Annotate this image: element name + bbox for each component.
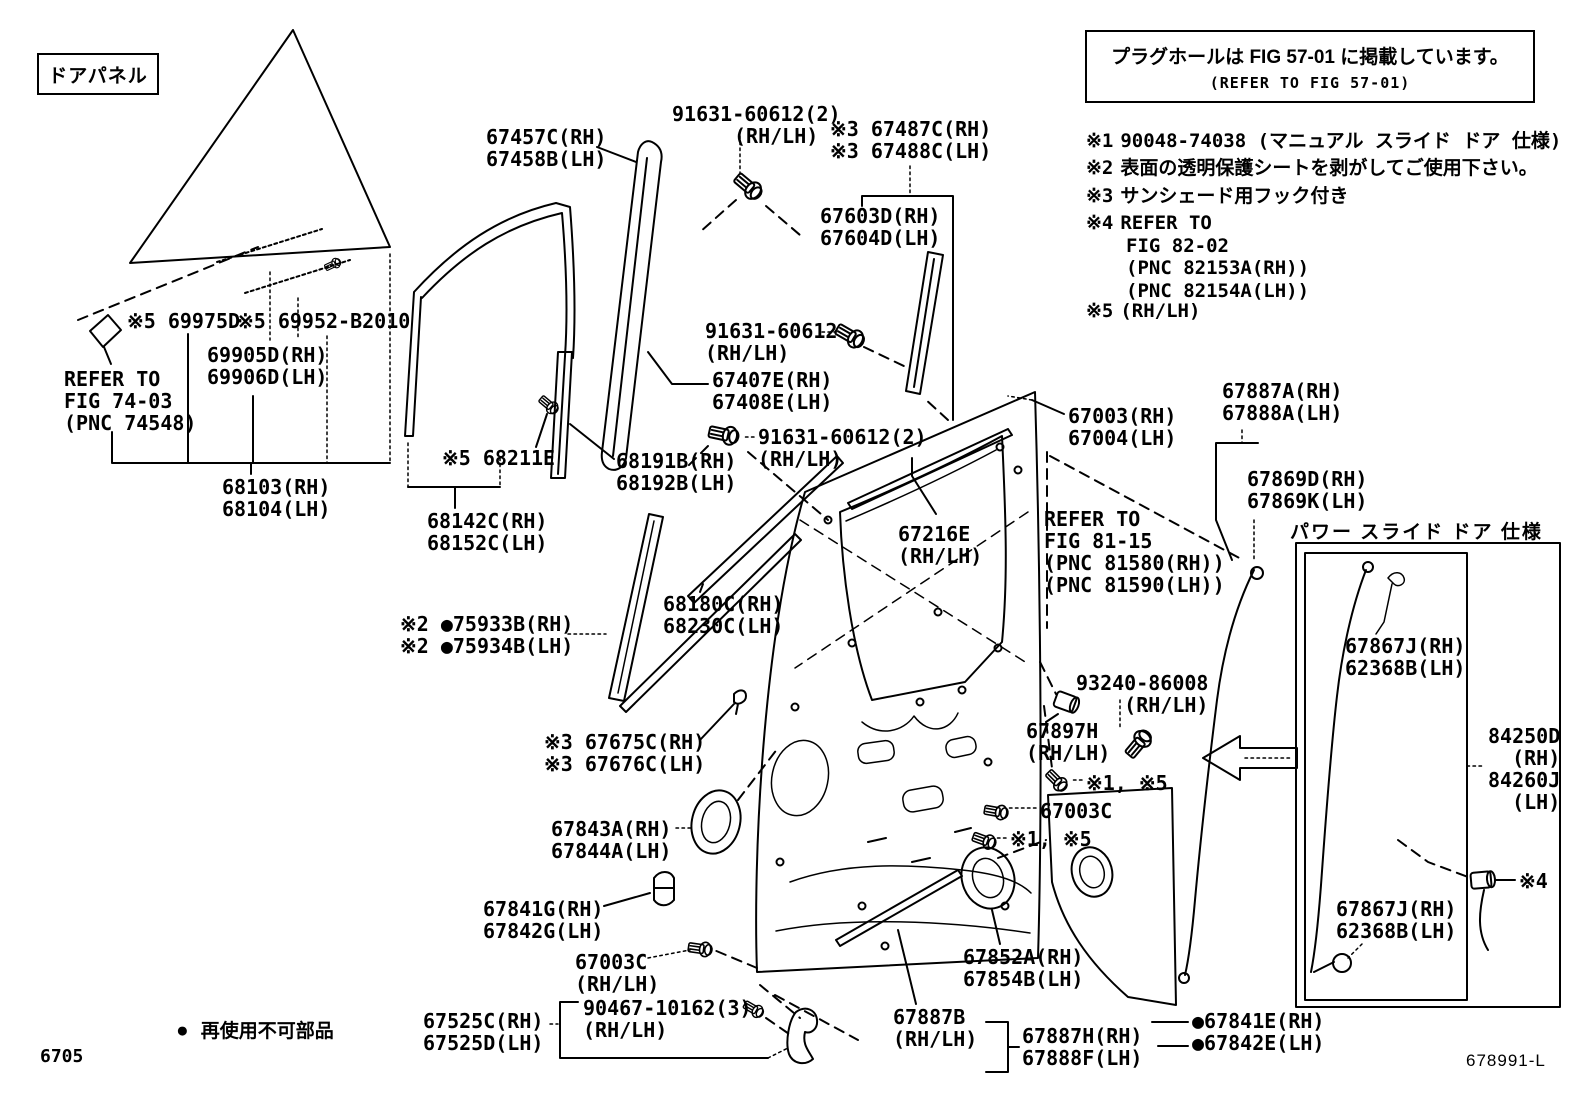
- part-label-line: FIG 81-15: [1044, 530, 1225, 552]
- part-label-line: 67887B: [893, 1006, 977, 1028]
- part-label-line: ※3 67675C(RH): [544, 731, 705, 753]
- part-label-line: ※1, ※5: [1086, 772, 1168, 794]
- parts-diagram-page: ドアパネル プラグホールは FIG 57-01 に掲載しています。 (REFER…: [0, 0, 1592, 1099]
- part-label-line: 67603D(RH): [820, 205, 940, 227]
- plug-hole-note-jp: プラグホールは FIG 57-01 に掲載しています。: [1111, 42, 1509, 69]
- label-67487c: ※3 67487C(RH)※3 67488C(LH): [830, 118, 991, 162]
- plug-hole-note-en: (REFER TO FIG 57-01): [1210, 74, 1411, 92]
- weatherstrip-69906: [245, 260, 350, 293]
- footnote-marker: ※2: [1086, 157, 1113, 180]
- part-label-line: 67867J(RH): [1345, 635, 1465, 657]
- part-label-line: (RH/LH): [583, 1019, 752, 1041]
- part-label-line: 67887H(RH): [1022, 1025, 1142, 1047]
- label-note15-a: ※1, ※5: [1086, 772, 1168, 794]
- part-label-line: 67897H: [1026, 720, 1110, 742]
- part-label-line: 67888F(LH): [1022, 1047, 1142, 1069]
- part-label-line: 67003C: [1040, 800, 1112, 822]
- footnote-marker: ※5: [1086, 300, 1113, 323]
- part-label-line: 68104(LH): [222, 498, 330, 520]
- footnote-2: ※2表面の透明保護シートを剥がしてご使用下さい。: [1086, 157, 1538, 180]
- part-label-line: ●67841E(RH): [1192, 1010, 1324, 1032]
- footnote-marker: ※4: [1086, 212, 1113, 235]
- label-67457c: 67457C(RH)67458B(LH): [486, 126, 606, 170]
- connector-tail: [1480, 890, 1488, 950]
- footnote-text: 90048-74038 (マニュアル スライド ドア 仕様): [1120, 130, 1561, 152]
- label-68103: 68103(RH)68104(LH): [222, 476, 330, 520]
- page-number: 6705: [40, 1046, 83, 1067]
- part-label-line: 67867J(RH): [1336, 898, 1456, 920]
- label-67841e: ●67841E(RH)●67842E(LH): [1192, 1010, 1324, 1054]
- part-label-line: 67458B(LH): [486, 148, 606, 170]
- label-68142c: 68142C(RH)68152C(LH): [427, 510, 547, 554]
- cable-67887a: [1185, 570, 1254, 975]
- non-reusable-dot-icon: ●: [176, 1019, 189, 1042]
- label-67887a: 67887A(RH)67888A(LH): [1222, 380, 1342, 424]
- part-label-line: (LH): [1488, 791, 1560, 813]
- part-label-line: ※3 67488C(LH): [830, 140, 991, 162]
- label-67003c-bottom: 67003C(RH/LH): [575, 951, 659, 995]
- part-label-line: 67216E: [898, 523, 982, 545]
- bracket-67841g: [654, 872, 674, 905]
- door-glass: [130, 30, 390, 263]
- footnote-text: REFER TO: [1120, 212, 1212, 234]
- part-label-line: 67843A(RH): [551, 818, 671, 840]
- part-label-line: 91631-60612(2): [672, 103, 841, 125]
- label-67407e: 67407E(RH)67408E(LH): [712, 369, 832, 413]
- part-label-line: (RH/LH): [734, 125, 841, 147]
- label-75933b: ※2 ●75933B(RH)※2 ●75934B(LH): [400, 613, 573, 657]
- part-label-line: ※5 69952-B2010: [237, 310, 410, 332]
- label-69905d: 69905D(RH)69906D(LH): [207, 344, 327, 388]
- part-label-line: 67869D(RH): [1247, 468, 1367, 490]
- part-label-line: (RH): [1488, 747, 1560, 769]
- label-67897h: 67897H(RH/LH): [1026, 720, 1110, 764]
- label-68180c: 68180C(RH)68230C(LH): [663, 593, 783, 637]
- label-91631-top: 91631-60612(2)(RH/LH): [672, 103, 841, 147]
- part-label-line: ※1, ※5: [1010, 828, 1092, 850]
- part-label-line: 68103(RH): [222, 476, 330, 498]
- part-label-line: (RH/LH): [575, 973, 659, 995]
- label-refer-fig-74-03: REFER TOFIG 74-03(PNC 74548): [64, 368, 196, 434]
- footnote-marker: ※1: [1086, 130, 1113, 153]
- label-67003c-right: 67003C: [1040, 800, 1112, 822]
- label-91631-mid: 91631-60612(RH/LH): [705, 320, 837, 364]
- part-label-line: ※4: [1519, 870, 1548, 892]
- part-label-line: (RH/LH): [758, 448, 927, 470]
- label-84250d: 84250D(RH)84260J(LH): [1488, 725, 1560, 813]
- label-93240: 93240-86008(RH/LH): [1076, 672, 1208, 716]
- part-label-line: 68152C(LH): [427, 532, 547, 554]
- part-label-line: ※5 69975D: [127, 310, 240, 332]
- part-label-line: REFER TO: [64, 368, 196, 390]
- part-label-line: (RH/LH): [705, 342, 837, 364]
- part-label-line: 67888A(LH): [1222, 402, 1342, 424]
- part-label-line: 84260J: [1488, 769, 1560, 791]
- part-label-line: 93240-86008: [1076, 672, 1208, 694]
- label-67675c: ※3 67675C(RH)※3 67676C(LH): [544, 731, 705, 775]
- plug-hole-note-box: プラグホールは FIG 57-01 に掲載しています。 (REFER TO FI…: [1085, 30, 1535, 103]
- footnote-1: ※190048-74038 (マニュアル スライド ドア 仕様): [1086, 130, 1561, 153]
- label-note15-b: ※1, ※5: [1010, 828, 1092, 850]
- grommet-67843: [685, 785, 747, 859]
- door-panel-tag: ドアパネル: [37, 53, 159, 95]
- part-label-line: 67604D(LH): [820, 227, 940, 249]
- part-label-line: 69906D(LH): [207, 366, 327, 388]
- part-label-line: 67869K(LH): [1247, 490, 1367, 512]
- part-label-line: REFER TO: [1044, 508, 1225, 530]
- footnote-marker: ※3: [1086, 185, 1113, 208]
- label-69975d: ※5 69975D: [127, 310, 240, 332]
- part-label-line: 68230C(LH): [663, 615, 783, 637]
- part-label-line: 69905D(RH): [207, 344, 327, 366]
- door-window-opening: [840, 436, 1006, 700]
- label-67887b: 67887B(RH/LH): [893, 1006, 977, 1050]
- part-label-line: (RH/LH): [898, 545, 982, 567]
- part-label-line: (PNC 81590(LH)): [1044, 574, 1225, 596]
- legend-text: 再使用不可部品: [201, 1021, 334, 1042]
- label-67869d: 67869D(RH)67869K(LH): [1247, 468, 1367, 512]
- footnote-text: (RH/LH): [1120, 300, 1200, 322]
- part-label-line: (RH/LH): [1076, 694, 1208, 716]
- part-label-line: (PNC 81580(RH)): [1044, 552, 1225, 574]
- part-label-line: 67004(LH): [1068, 427, 1176, 449]
- label-note4-ref: ※4: [1519, 870, 1548, 892]
- label-67867j-bottom: 67867J(RH)62368B(LH): [1336, 898, 1456, 942]
- footnote-text: 表面の透明保護シートを剥がしてご使用下さい。: [1120, 157, 1537, 179]
- footnote-text: FIG 82-02: [1126, 235, 1309, 258]
- label-90467: 90467-10162(3)(RH/LH): [583, 997, 752, 1041]
- footnote-text: サンシェード用フック付き: [1120, 185, 1348, 207]
- part-label-line: 68142C(RH): [427, 510, 547, 532]
- footnote-text: (PNC 82154A(LH)): [1126, 280, 1309, 303]
- part-label-line: FIG 74-03: [64, 390, 196, 412]
- footnote-3: ※3サンシェード用フック付き: [1086, 185, 1348, 208]
- sash-67457: [602, 141, 662, 470]
- label-67852a: 67852A(RH)67854B(LH): [963, 946, 1083, 990]
- part-label-line: 67003(RH): [1068, 405, 1176, 427]
- part-label-line: 90467-10162(3): [583, 997, 752, 1019]
- label-67841g: 67841G(RH)67842G(LH): [483, 898, 603, 942]
- label-68191b: 68191B(RH)68192B(LH): [616, 450, 736, 494]
- part-label-line: ※2 ●75933B(RH): [400, 613, 573, 635]
- part-label-line: (RH/LH): [893, 1028, 977, 1050]
- footnote-text: (PNC 82153A(RH)): [1126, 257, 1309, 280]
- hook-67525: [787, 1009, 817, 1063]
- part-label-line: 62368B(LH): [1336, 920, 1456, 942]
- power-slide-door-title: パワー スライド ドア 仕様: [1290, 517, 1543, 544]
- label-68211e: ※5 68211E: [442, 447, 555, 469]
- part-label-line: 67854B(LH): [963, 968, 1083, 990]
- part-label-line: 67887A(RH): [1222, 380, 1342, 402]
- part-label-line: 67841G(RH): [483, 898, 603, 920]
- clip-74548: [90, 315, 121, 347]
- part-label-line: 67852A(RH): [963, 946, 1083, 968]
- grommet-67852: [954, 840, 1023, 915]
- label-91631-low: 91631-60612(2)(RH/LH): [758, 426, 927, 470]
- part-label-line: ※3 67676C(LH): [544, 753, 705, 775]
- part-label-line: 67408E(LH): [712, 391, 832, 413]
- label-67887h: 67887H(RH)67888F(LH): [1022, 1025, 1142, 1069]
- legend-non-reusable: ●再使用不可部品: [176, 1016, 334, 1043]
- part-label-line: (PNC 74548): [64, 412, 196, 434]
- label-69952: ※5 69952-B2010: [237, 310, 410, 332]
- footnote-4: ※4REFER TOFIG 82-02(PNC 82153A(RH))(PNC …: [1086, 212, 1309, 302]
- part-label-line: (RH/LH): [1026, 742, 1110, 764]
- part-label-line: 67844A(LH): [551, 840, 671, 862]
- diagram-id: 678991-L: [1466, 1051, 1546, 1071]
- label-67603d: 67603D(RH)67604D(LH): [820, 205, 940, 249]
- part-label-line: 67003C: [575, 951, 659, 973]
- part-label-line: 68192B(LH): [616, 472, 736, 494]
- part-label-line: ※5 68211E: [442, 447, 555, 469]
- part-label-line: ※2 ●75934B(LH): [400, 635, 573, 657]
- part-label-line: 67525C(RH): [423, 1010, 543, 1032]
- part-label-line: 67525D(LH): [423, 1032, 543, 1054]
- part-label-line: ※3 67487C(RH): [830, 118, 991, 140]
- part-label-line: ●67842E(LH): [1192, 1032, 1324, 1054]
- part-label-line: 84250D: [1488, 725, 1560, 747]
- label-67003: 67003(RH)67004(LH): [1068, 405, 1176, 449]
- part-label-line: 91631-60612(2): [758, 426, 927, 448]
- label-refer-fig-81-15: REFER TOFIG 81-15(PNC 81580(RH))(PNC 815…: [1044, 508, 1225, 596]
- label-67843a: 67843A(RH)67844A(LH): [551, 818, 671, 862]
- part-label-line: 67407E(RH): [712, 369, 832, 391]
- part-label-line: 67457C(RH): [486, 126, 606, 148]
- part-label-line: 62368B(LH): [1345, 657, 1465, 679]
- footnote-5: ※5(RH/LH): [1086, 300, 1200, 323]
- label-67867j-top: 67867J(RH)62368B(LH): [1345, 635, 1465, 679]
- part-label-line: 68191B(RH): [616, 450, 736, 472]
- label-67525c: 67525C(RH)67525D(LH): [423, 1010, 543, 1054]
- label-67216e: 67216E(RH/LH): [898, 523, 982, 567]
- part-label-line: 68180C(RH): [663, 593, 783, 615]
- part-label-line: 67842G(LH): [483, 920, 603, 942]
- clip-67675: [734, 690, 746, 714]
- part-label-line: 91631-60612: [705, 320, 837, 342]
